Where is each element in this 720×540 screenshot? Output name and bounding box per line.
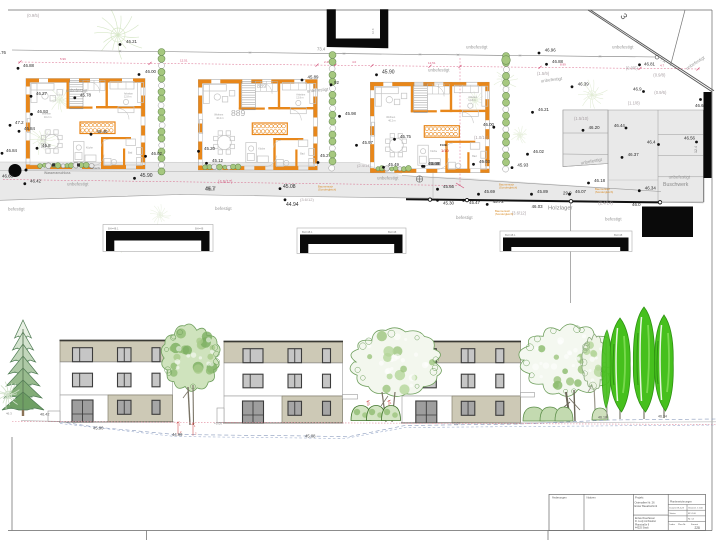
svg-text:Küche: Küche [86, 147, 93, 150]
svg-text:(1.5/10): (1.5/10) [574, 116, 589, 121]
svg-text:Küche: Küche [430, 150, 437, 153]
svg-text:46.21: 46.21 [126, 39, 138, 44]
svg-text:unbefestigt: unbefestigt [669, 175, 691, 180]
svg-text:unbefestigt: unbefestigt [67, 182, 89, 187]
svg-text:45.90: 45.90 [382, 70, 395, 76]
svg-text:45.90: 45.90 [140, 173, 153, 179]
svg-text:16.8: 16.8 [371, 28, 375, 34]
svg-text:Plan-Nr.: Plan-Nr. [678, 523, 686, 526]
svg-text:40.2 m: 40.2 m [388, 120, 395, 123]
svg-text:46.18: 46.18 [598, 416, 607, 420]
svg-text:Fl.Nr.: Fl.Nr. [440, 143, 448, 147]
svg-text:44225 Stadt: 44225 Stadt [635, 527, 649, 530]
svg-text:12.8 m: 12.8 m [468, 99, 475, 102]
svg-text:Wasseranschluss: Wasseranschluss [44, 171, 71, 175]
svg-text:45.75: 45.75 [400, 134, 412, 139]
svg-text:45.89: 45.89 [537, 189, 549, 194]
svg-text:4.0: 4.0 [352, 60, 357, 64]
svg-text:46.34: 46.34 [658, 415, 667, 419]
svg-text:unbefestigt: unbefestigt [428, 68, 450, 73]
svg-text:(1.5/9): (1.5/9) [537, 71, 550, 76]
svg-text:228: 228 [695, 526, 701, 530]
svg-text:45.90: 45.90 [93, 426, 104, 431]
svg-text:(3.6/12): (3.6/12) [512, 211, 527, 216]
svg-text:Datum 09.4.23: Datum 09.4.23 [670, 506, 685, 509]
svg-text:Bad: Bad [128, 152, 133, 155]
svg-text:unbefestigt: unbefestigt [612, 45, 634, 50]
svg-text:Ostenallee Nr. 26: Ostenallee Nr. 26 [635, 501, 656, 505]
svg-text:46.81: 46.81 [644, 61, 656, 66]
svg-text:45.93: 45.93 [517, 162, 529, 167]
svg-text:46.27: 46.27 [36, 91, 48, 96]
svg-text:Nr. 14: Nr. 14 [688, 518, 695, 521]
svg-text:44.99: 44.99 [172, 432, 183, 437]
svg-text:befestigt: befestigt [215, 206, 232, 211]
svg-text:(Sondergleich): (Sondergleich) [499, 186, 517, 190]
svg-text:12.4: 12.4 [694, 146, 698, 153]
svg-text:45.97: 45.97 [362, 140, 374, 145]
svg-text:46.6: 46.6 [695, 103, 704, 108]
svg-text:BH=48.1: BH=48.1 [505, 233, 516, 237]
svg-text:46.76: 46.76 [0, 50, 7, 55]
svg-text:(1.0/10): (1.0/10) [474, 135, 489, 140]
svg-text:45.98: 45.98 [345, 111, 357, 116]
svg-text:12.51: 12.51 [428, 61, 436, 65]
svg-text:Holzlager: Holzlager [548, 206, 573, 212]
svg-text:889: 889 [257, 84, 266, 90]
svg-text:45.93: 45.93 [479, 159, 491, 164]
svg-text:45.66: 45.66 [443, 184, 455, 189]
svg-text:Status: Status [670, 512, 677, 515]
svg-text:46.84: 46.84 [6, 148, 18, 153]
svg-text:(0.9/8): (0.9/8) [653, 73, 666, 78]
svg-text:Planbezeichnungen: Planbezeichnungen [670, 501, 693, 504]
svg-text:(Sondergleich): (Sondergleich) [318, 188, 336, 192]
svg-text:(Sondergleich): (Sondergleich) [595, 190, 613, 194]
svg-text:46.42: 46.42 [30, 179, 42, 184]
svg-text:12.8 m: 12.8 m [124, 96, 131, 99]
svg-text:46.39: 46.39 [578, 82, 590, 87]
svg-text:47.2: 47.2 [15, 120, 24, 125]
svg-text:BH=48: BH=48 [195, 227, 204, 231]
svg-text:45.08: 45.08 [283, 184, 296, 190]
svg-text:Projekt: Projekt [635, 496, 644, 500]
svg-text:46.8: 46.8 [42, 143, 51, 148]
svg-text:Bad: Bad [300, 153, 305, 156]
svg-text:unbefestigt: unbefestigt [466, 45, 488, 50]
svg-text:(1.1/8): (1.1/8) [628, 101, 641, 106]
svg-text:4.7: 4.7 [660, 63, 665, 67]
svg-text:BH=48: BH=48 [614, 233, 623, 237]
svg-text:45.78: 45.78 [80, 93, 92, 98]
svg-text:(0.9/6): (0.9/6) [654, 90, 667, 95]
svg-text:(2.4/14): (2.4/14) [357, 163, 371, 168]
svg-text:45.89: 45.89 [308, 75, 320, 80]
svg-text:(Sondergleich): (Sondergleich) [495, 212, 513, 216]
svg-text:46.07: 46.07 [575, 189, 587, 194]
svg-text:92: 92 [334, 80, 339, 85]
svg-text:1/10: 1/10 [441, 148, 450, 153]
svg-text:Index: Index [670, 524, 676, 526]
svg-text:46.44: 46.44 [614, 123, 626, 128]
svg-text:Erster Bauabschnitt: Erster Bauabschnitt [635, 504, 658, 508]
svg-text:44.94: 44.94 [286, 202, 299, 208]
svg-text:46.93: 46.93 [37, 109, 49, 114]
svg-text:46.88: 46.88 [23, 63, 35, 68]
svg-text:Küche: Küche [258, 148, 265, 151]
svg-text:befestigt: befestigt [8, 207, 25, 212]
svg-text:BH=48.1: BH=48.1 [302, 230, 313, 234]
svg-text:45.20: 45.20 [204, 146, 216, 151]
svg-text:46.20: 46.20 [589, 125, 601, 130]
svg-text:BH=48.1: BH=48.1 [108, 227, 119, 231]
svg-text:46.7: 46.7 [206, 187, 216, 193]
svg-text:46.18: 46.18 [594, 178, 606, 183]
svg-text:+0.00: +0.00 [452, 421, 460, 425]
svg-text:Bad: Bad [472, 155, 477, 158]
svg-text:12.8 m: 12.8 m [296, 97, 303, 100]
svg-text:46.42: 46.42 [40, 413, 50, 417]
svg-text:45.12: 45.12 [212, 158, 224, 163]
svg-text:befestigt: befestigt [605, 217, 622, 222]
svg-text:40.2 m: 40.2 m [44, 116, 51, 119]
svg-text:45.40: 45.40 [97, 129, 109, 134]
svg-text:Änderungen: Änderungen [552, 496, 567, 500]
svg-text:46.56: 46.56 [684, 136, 696, 141]
svg-text:Buschwerk: Buschwerk [663, 182, 689, 188]
svg-text:46.9: 46.9 [633, 87, 642, 92]
svg-text:46.68: 46.68 [2, 174, 14, 179]
svg-text:12.51: 12.51 [180, 58, 188, 62]
svg-text:46.02: 46.02 [151, 151, 163, 156]
svg-text:29.9: 29.9 [563, 191, 572, 196]
svg-text:(0.9/5): (0.9/5) [626, 66, 639, 71]
svg-text:46.21: 46.21 [538, 107, 550, 112]
svg-text:Schacht: Schacht [90, 166, 100, 170]
svg-text:unbefestigt: unbefestigt [377, 176, 399, 181]
svg-text:45.88: 45.88 [429, 161, 441, 166]
svg-text:45.08: 45.08 [305, 434, 316, 439]
svg-text:5.99: 5.99 [60, 57, 66, 61]
svg-text:(3.6/12): (3.6/12) [300, 197, 314, 202]
svg-text:46.3: 46.3 [6, 412, 12, 416]
svg-text:46.00: 46.00 [145, 69, 157, 74]
svg-text:46.03: 46.03 [532, 204, 544, 209]
svg-text:befestigt: befestigt [456, 215, 473, 220]
svg-text:Notizen: Notizen [587, 496, 597, 500]
svg-text:46.96: 46.96 [545, 48, 557, 53]
svg-text:889: 889 [231, 108, 245, 118]
svg-text:46.02: 46.02 [533, 149, 545, 154]
svg-text:40.2 m: 40.2 m [216, 117, 223, 120]
svg-text:46.4: 46.4 [647, 140, 656, 145]
svg-text:46.0: 46.0 [632, 202, 641, 207]
svg-text:46.37: 46.37 [628, 152, 640, 157]
svg-text:46.34: 46.34 [645, 186, 657, 191]
svg-text:(0.9/5): (0.9/5) [27, 13, 40, 18]
svg-text:+0.00: +0.00 [214, 421, 222, 425]
svg-text:Gezeich. 1:100: Gezeich. 1:100 [688, 507, 703, 509]
svg-text:45.72: 45.72 [493, 199, 505, 204]
svg-text:73.4: 73.4 [317, 47, 326, 52]
svg-text:45.2: 45.2 [320, 153, 329, 158]
svg-text:(2.4/14): (2.4/14) [598, 201, 613, 206]
svg-text:(4.5/17): (4.5/17) [218, 179, 233, 184]
svg-text:45.47: 45.47 [469, 200, 481, 205]
svg-text:46.88: 46.88 [552, 59, 564, 64]
svg-text:45.69: 45.69 [484, 189, 496, 194]
svg-text:46.84: 46.84 [24, 126, 36, 131]
svg-text:M 1:100: M 1:100 [688, 513, 697, 515]
svg-text:unbefestigt: unbefestigt [66, 88, 88, 93]
svg-text:45.49: 45.49 [388, 162, 400, 167]
svg-text:BH=48: BH=48 [388, 230, 397, 234]
svg-text:45.30: 45.30 [443, 201, 455, 206]
